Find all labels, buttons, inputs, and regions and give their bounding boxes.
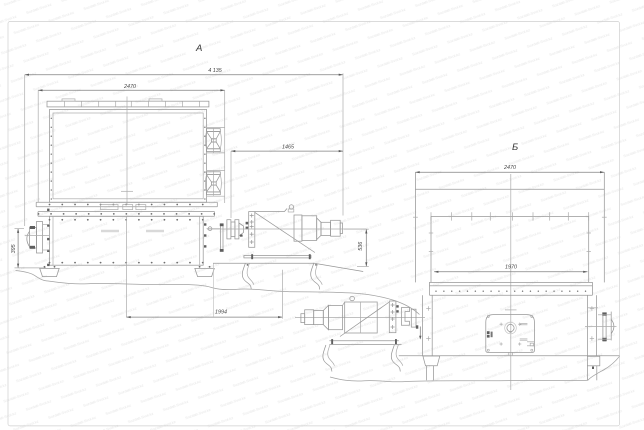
svg-text:A: A xyxy=(195,43,202,54)
svg-text:395: 395 xyxy=(11,243,17,253)
svg-text:536: 536 xyxy=(358,242,364,251)
svg-text:1465: 1465 xyxy=(282,144,295,150)
svg-text:Б: Б xyxy=(512,142,518,153)
svg-text:4 135: 4 135 xyxy=(208,68,222,74)
svg-text:1970: 1970 xyxy=(505,265,517,271)
svg-text:2470: 2470 xyxy=(123,84,136,90)
svg-text:2470: 2470 xyxy=(503,165,516,171)
svg-text:1994: 1994 xyxy=(215,310,227,316)
